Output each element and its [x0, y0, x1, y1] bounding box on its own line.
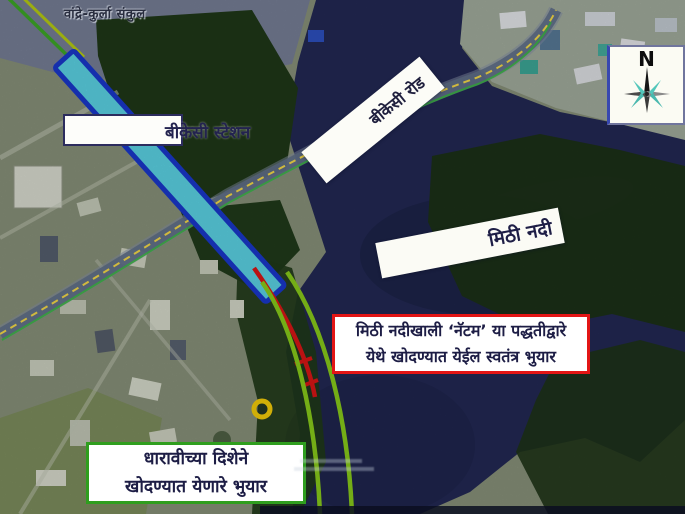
map-watermark [294, 467, 374, 471]
tunnel-callout-line2: येथे खोदण्यात येईल स्वतंत्र भुयार [366, 344, 556, 370]
tunnel-callout-box: मिठी नदीखाली ‘नॅटम’ या पद्धतीद्वारे येथे… [332, 314, 590, 374]
map-watermark [300, 459, 362, 463]
dharavi-callout-line2: खोदण्यात येणारे भुयार [125, 473, 267, 501]
satellite-basemap [0, 0, 685, 514]
river-label-text: मिठी नदी [486, 214, 554, 252]
basemap-area-label: वांद्रे-कुर्ला संकुल [64, 4, 146, 22]
dharavi-callout-line1: धारावीच्या दिशेने [144, 445, 248, 473]
tunnel-callout-line1: मिठी नदीखाली ‘नॅटम’ या पद्धतीद्वारे [356, 318, 566, 344]
texture-overlay [0, 0, 685, 514]
compass-rose-icon [620, 67, 674, 121]
station-label-text: बीकेसी स्टेशन [165, 120, 250, 143]
satellite-map: वांद्रे-कुर्ला संकुल बीकेसी स्टेशन बीकेस… [0, 0, 685, 514]
station-label-box: बीकेसी स्टेशन [63, 114, 183, 146]
compass-box: N [607, 45, 685, 125]
dharavi-callout-box: धारावीच्या दिशेने खोदण्यात येणारे भुयार [86, 442, 306, 504]
